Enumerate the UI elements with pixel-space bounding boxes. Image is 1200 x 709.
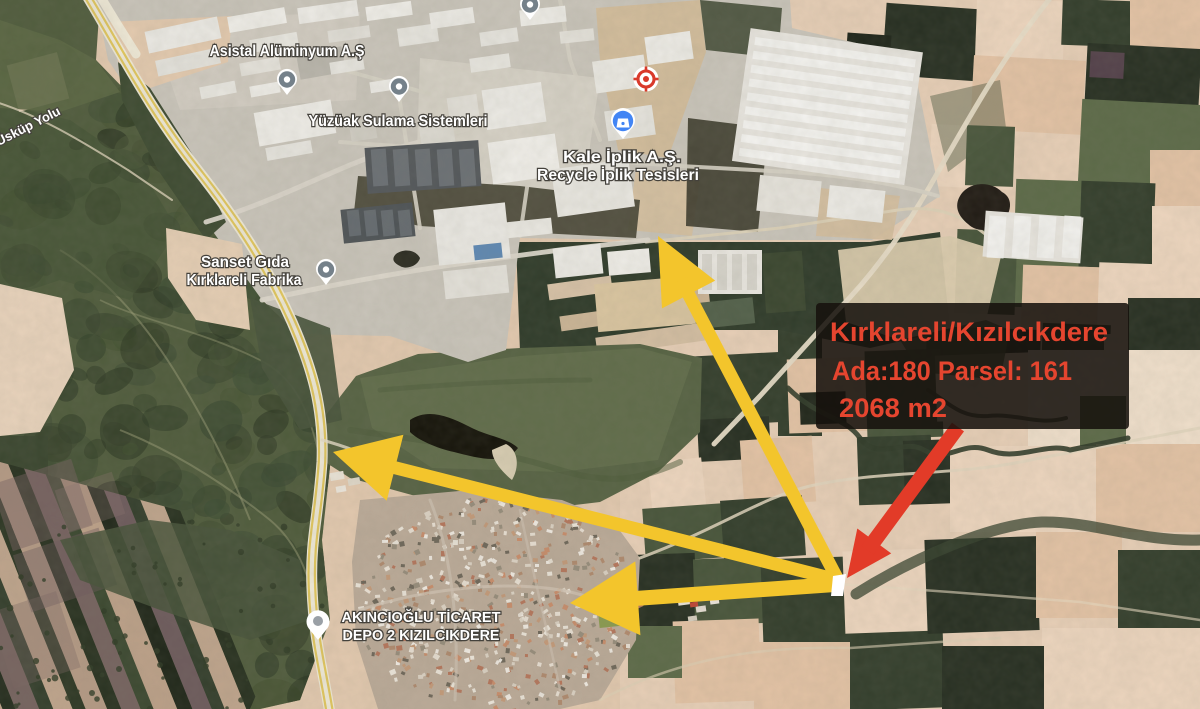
svg-text:Yüzüak Sulama Sistemleri: Yüzüak Sulama Sistemleri xyxy=(309,113,488,130)
svg-text:Sanset Gıda: Sanset Gıda xyxy=(201,254,289,271)
svg-text:Ada:180 Parsel: 161: Ada:180 Parsel: 161 xyxy=(832,356,1072,386)
svg-text:Asistal Alüminyum A.Ş: Asistal Alüminyum A.Ş xyxy=(210,43,365,60)
svg-text:2068 m2: 2068 m2 xyxy=(839,393,947,423)
svg-text:Kırklareli Fabrika: Kırklareli Fabrika xyxy=(187,272,302,289)
svg-text:DEPO 2 KIZILCIKDERE: DEPO 2 KIZILCIKDERE xyxy=(343,628,500,644)
svg-text:Recycle İplik Tesisleri: Recycle İplik Tesisleri xyxy=(537,166,699,184)
svg-text:AKINCIOĞLU TİCARET: AKINCIOĞLU TİCARET xyxy=(342,608,501,626)
svg-text:Kale İplik A.Ş.: Kale İplik A.Ş. xyxy=(563,148,681,166)
svg-text:Kırklareli/Kızılcıkdere: Kırklareli/Kızılcıkdere xyxy=(830,317,1108,347)
